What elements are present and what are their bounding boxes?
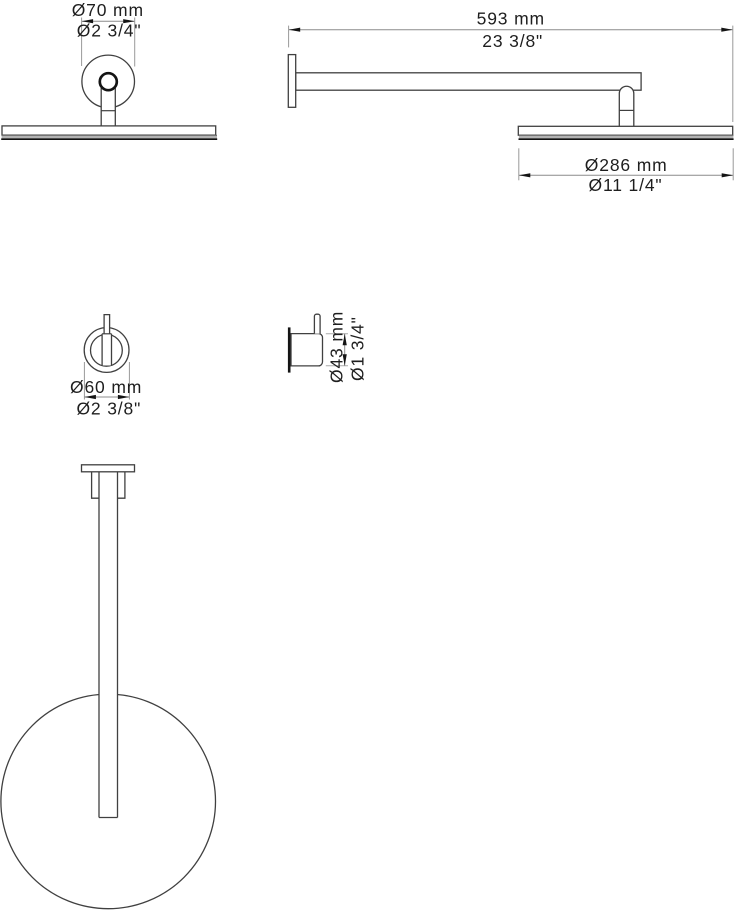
svg-text:Ø11 1/4": Ø11 1/4" <box>589 175 663 195</box>
svg-text:23 3/8": 23 3/8" <box>482 31 543 51</box>
svg-text:Ø43 mm: Ø43 mm <box>327 311 347 383</box>
svg-text:Ø286 mm: Ø286 mm <box>585 155 668 175</box>
svg-text:Ø1 3/4": Ø1 3/4" <box>348 316 368 381</box>
svg-text:Ø2 3/8": Ø2 3/8" <box>76 398 141 418</box>
svg-text:Ø70 mm: Ø70 mm <box>72 0 144 20</box>
svg-text:Ø2 3/4": Ø2 3/4" <box>77 21 142 41</box>
svg-text:593 mm: 593 mm <box>477 8 545 28</box>
svg-text:Ø60 mm: Ø60 mm <box>70 377 142 397</box>
